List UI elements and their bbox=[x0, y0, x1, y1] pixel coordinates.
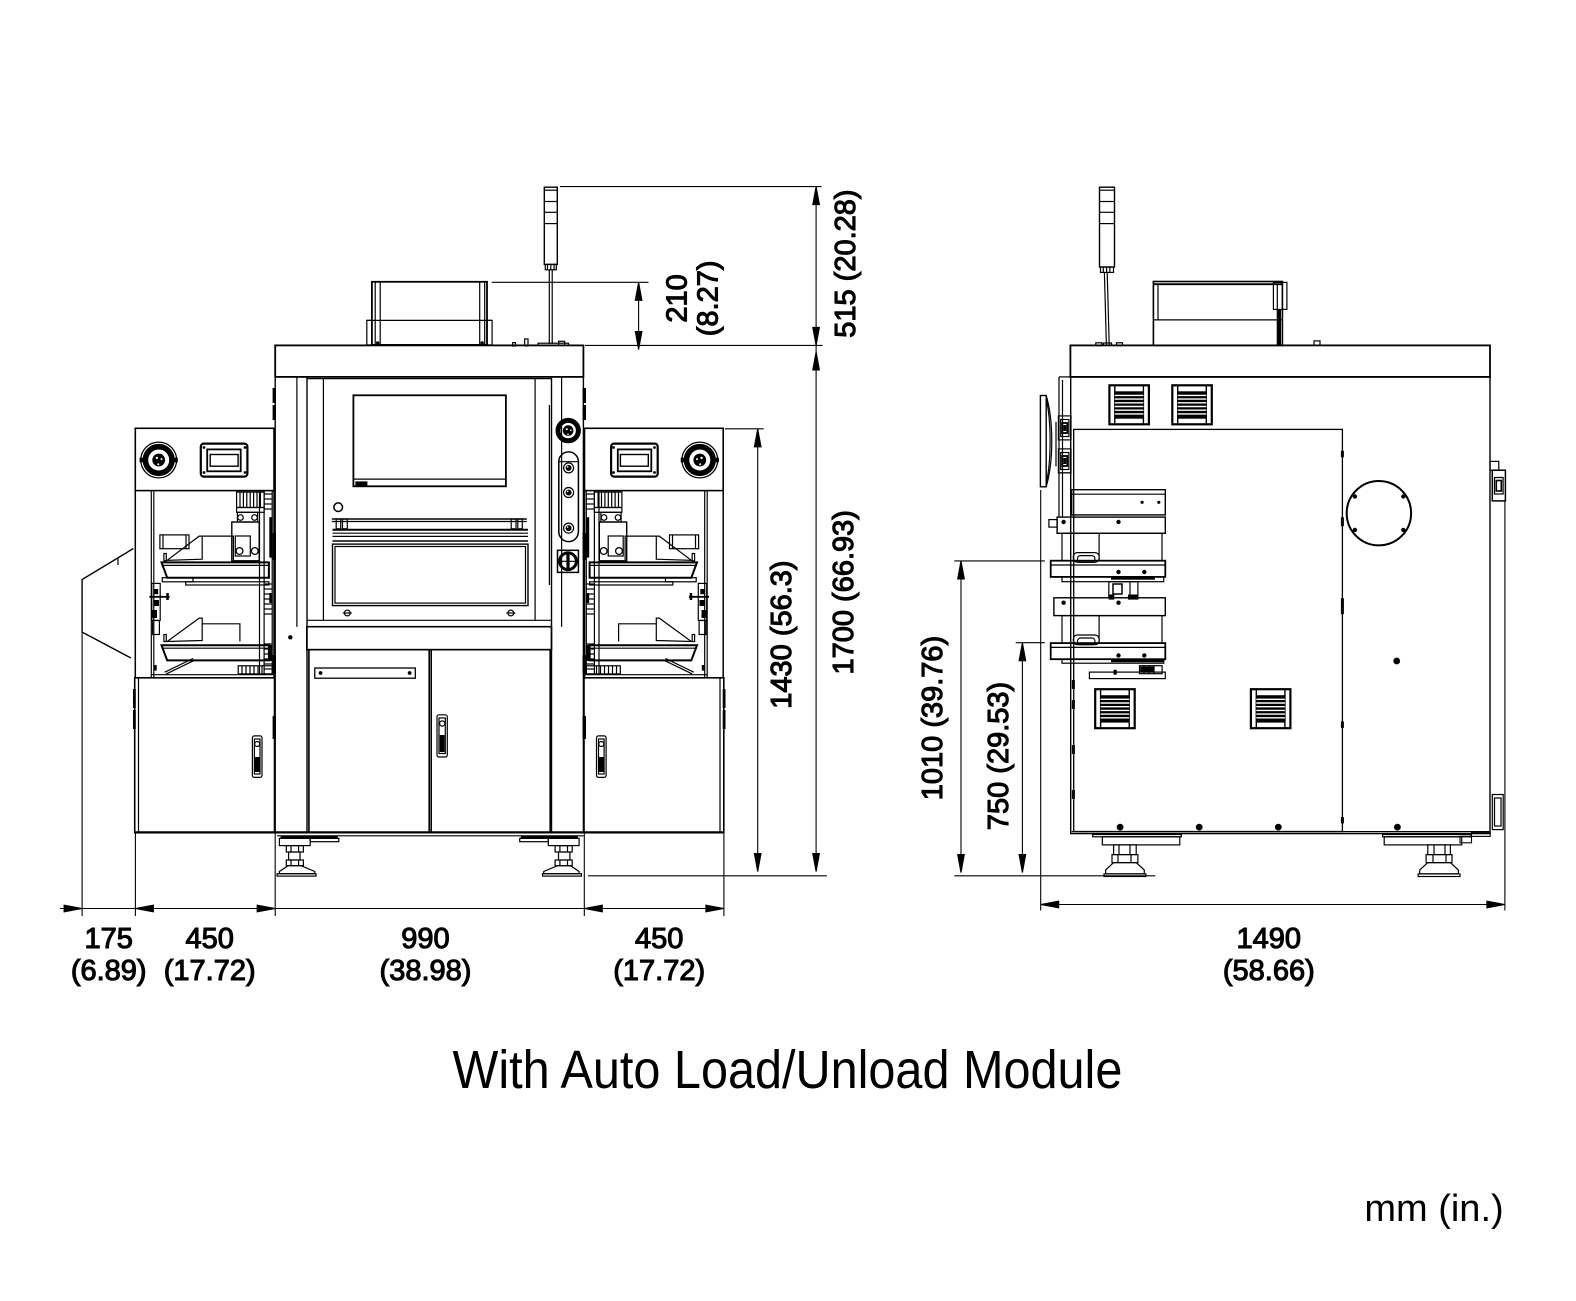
svg-text:(58.66): (58.66) bbox=[1223, 955, 1315, 987]
svg-text:175: 175 bbox=[85, 923, 133, 955]
svg-text:1430 (56.3): 1430 (56.3) bbox=[766, 560, 798, 708]
svg-text:750 (29.53): 750 (29.53) bbox=[983, 682, 1015, 830]
svg-text:450: 450 bbox=[635, 923, 683, 955]
svg-text:(17.72): (17.72) bbox=[613, 955, 705, 987]
svg-text:mm (in.): mm (in.) bbox=[1364, 1188, 1503, 1230]
svg-text:1010 (39.76): 1010 (39.76) bbox=[917, 636, 949, 800]
svg-text:(8.27): (8.27) bbox=[693, 261, 725, 337]
svg-text:(6.89): (6.89) bbox=[71, 955, 147, 987]
svg-text:450: 450 bbox=[186, 923, 234, 955]
svg-text:1700 (66.93): 1700 (66.93) bbox=[828, 510, 860, 674]
svg-text:210: 210 bbox=[661, 274, 693, 322]
svg-text:(38.98): (38.98) bbox=[380, 955, 472, 987]
svg-text:1490: 1490 bbox=[1237, 923, 1302, 955]
svg-text:990: 990 bbox=[401, 923, 449, 955]
svg-text:515 (20.28): 515 (20.28) bbox=[830, 189, 862, 337]
svg-text:With Auto Load/Unload Module: With Auto Load/Unload Module bbox=[452, 1039, 1122, 1100]
svg-text:(17.72): (17.72) bbox=[164, 955, 256, 987]
